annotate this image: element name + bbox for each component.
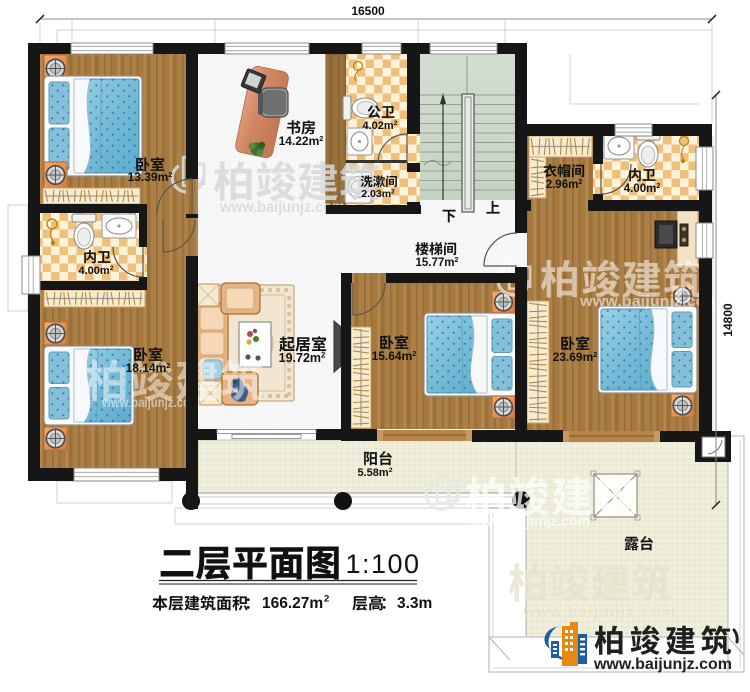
svg-text:2.96m2: 2.96m2 [546,178,583,191]
svg-text:13.39m2: 13.39m2 [128,170,173,184]
svg-text:：: ： [380,595,395,612]
svg-text:14.22m2: 14.22m2 [279,134,324,148]
svg-text:2.03m2: 2.03m2 [361,188,395,200]
svg-text:23.69m2: 23.69m2 [553,350,598,364]
svg-text:14800: 14800 [721,303,735,337]
svg-text:2: 2 [324,594,329,605]
svg-text:www.baijunjz.com: www.baijunjz.com [579,293,720,310]
svg-text:5.58m2: 5.58m2 [358,467,393,479]
svg-text:3.3m: 3.3m [397,595,432,612]
svg-text:15.64m2: 15.64m2 [372,349,417,363]
svg-text:4.00m2: 4.00m2 [79,265,114,277]
svg-text:www.baijunjz.com: www.baijunjz.com [593,656,732,673]
svg-text:18.14m2: 18.14m2 [126,361,171,375]
svg-text:www.baijunjz.com: www.baijunjz.com [522,604,676,621]
svg-text:19.72m2: 19.72m2 [279,351,326,365]
svg-text:1:100: 1:100 [345,549,420,579]
svg-text:166.27m: 166.27m [262,595,323,612]
svg-text:www.baijunjz.com: www.baijunjz.com [469,513,590,530]
svg-text:4.02m2: 4.02m2 [363,120,398,132]
svg-text:：: ： [244,595,259,612]
svg-text:www.baijunjz.com: www.baijunjz.com [101,394,200,410]
svg-text:4.00m2: 4.00m2 [624,182,661,195]
svg-text:16500: 16500 [351,4,385,18]
svg-text:15.77m2: 15.77m2 [416,256,459,269]
